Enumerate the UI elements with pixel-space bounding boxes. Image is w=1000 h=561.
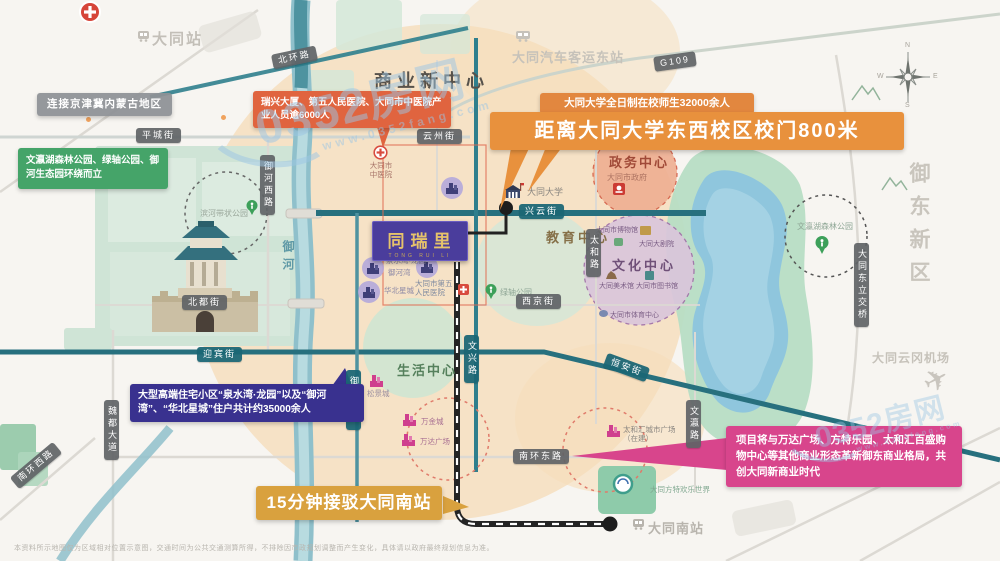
- street-weidu-avenue: 魏都大道: [104, 400, 119, 460]
- business-new-center-label: 商业新中心: [374, 67, 489, 93]
- mall-icon: [402, 434, 415, 446]
- residential-marker: [358, 281, 380, 303]
- poi-dot: [221, 115, 226, 120]
- place-tcm-hospital: 大同市中医院: [368, 161, 394, 180]
- place-riverside-park: 滨河带状公园: [200, 209, 248, 219]
- compass-w: W: [877, 73, 884, 80]
- datong-location-map: ✈: [0, 0, 1000, 561]
- datong-station-label: 大同站: [152, 28, 203, 49]
- art-gallery-icon: [606, 271, 617, 279]
- callout-south-station: 15分钟接驳大同南站: [256, 486, 442, 520]
- place-wenying-lake-park: 文瀛湖森林公园: [797, 222, 853, 232]
- park-pin-icon: [485, 284, 497, 299]
- callout-region: 连接京津冀内蒙古地区: [37, 93, 172, 116]
- street-yuhe-west: 御河西路: [260, 155, 275, 215]
- park-pin-icon: [815, 236, 829, 254]
- place-fifth-hospital: 大同市第五人民医院: [415, 279, 455, 298]
- university-icon: [504, 183, 524, 199]
- fantawild-logo-icon: [612, 473, 634, 495]
- place-art-gallery: 大同美术馆: [599, 283, 634, 292]
- yudong-district-label: 御东新区: [903, 162, 933, 294]
- culture-center-label: 文化中心: [612, 255, 676, 274]
- street-pingcheng: 平城街: [136, 128, 181, 143]
- government-center-label: 政务中心: [609, 152, 669, 171]
- place-datong-university: 大同大学: [527, 187, 563, 198]
- yu-river-label: 御河: [280, 240, 297, 276]
- street-beidu: 北都街: [182, 295, 227, 310]
- street-xingyun: 兴云街: [519, 204, 564, 219]
- street-wenying: 文瀛路: [686, 400, 701, 448]
- museum-icon: [614, 238, 623, 246]
- place-fantawild: 大同方特欢乐世界: [650, 485, 710, 494]
- compass-s: S: [905, 102, 910, 109]
- compass-star: [882, 44, 934, 110]
- mall-icon: [370, 375, 383, 387]
- callout-university-note: 大同大学全日制在校师生32000余人: [540, 93, 754, 114]
- theatre-icon: [640, 226, 651, 235]
- project-marker: 同瑞里 TONG RUI LI: [372, 221, 468, 261]
- park-pin-icon: [246, 200, 258, 215]
- train-icon: [632, 519, 645, 530]
- mall-icon: [403, 414, 416, 426]
- hospital-icon: [373, 145, 388, 160]
- place-yuhewan: 御河湾: [388, 268, 411, 277]
- street-wenxing: 文兴路: [464, 335, 479, 383]
- place-library: 大同市图书馆: [636, 283, 678, 292]
- street-yingbin: 迎宾街: [197, 347, 242, 362]
- disclaimer-text: 本资料所示地图仅为区域相对位置示意图，交通时间为公共交通测算所得，不排除因市政规…: [14, 543, 494, 553]
- callout-university-distance: 距离大同大学东西校区校门800米: [490, 112, 904, 150]
- place-sports-center: 大同市体育中心: [610, 312, 659, 321]
- train-icon: [137, 31, 150, 42]
- street-taihe: 太和路: [586, 229, 601, 277]
- place-theatre: 大同大剧院: [639, 241, 674, 250]
- project-tagline: TONG RUI LI: [373, 253, 467, 259]
- street-nanhuan-east: 南环东路: [513, 449, 569, 464]
- place-huabei-starcity: 华北星城: [384, 286, 414, 295]
- callout-residential: 大型高端住宅小区“泉水湾·龙园”以及“御河湾”、“华北星城”住户共计约35000…: [130, 384, 364, 422]
- place-wanda-plaza: 万达广场: [420, 437, 450, 446]
- stadium-icon: [599, 310, 608, 317]
- government-icon: [613, 183, 625, 195]
- place-songjingcheng: 松景城: [367, 389, 390, 398]
- hospital-cross-icon: [78, 0, 102, 24]
- compass-e: E: [933, 73, 938, 80]
- residential-marker: [441, 177, 463, 199]
- street-xijing: 西京街: [516, 294, 561, 309]
- south-station-label: 大同南站: [648, 518, 704, 537]
- project-name: 同瑞里: [377, 227, 467, 252]
- library-icon: [645, 271, 654, 280]
- bus-icon: [516, 30, 530, 42]
- living-center-label: 生活中心: [397, 360, 457, 379]
- callout-parks: 文瀛湖森林公园、绿轴公园、御河生态园环绕而立: [18, 148, 168, 189]
- callout-commerce: 项目将与万达广场、方特乐园、太和汇百盛购物中心等其他商业形态革新御东商业格局，共…: [726, 426, 962, 487]
- place-museum: 大同市博物馆: [596, 227, 638, 236]
- compass-n: N: [905, 42, 910, 49]
- poi-dot: [86, 117, 91, 122]
- callout-industry: 瑞兴大厦、第五人民医院、大同市中医院产业人员逾6000人: [253, 91, 451, 128]
- compass-rose: N S W E: [882, 44, 934, 110]
- mall-icon: [607, 425, 620, 437]
- street-yunzhou: 云州街: [417, 129, 462, 144]
- street-datong-east-interchange: 大同东立交桥: [854, 243, 869, 327]
- place-taihehui-plaza: 太和汇城市广场（在建）: [623, 425, 683, 444]
- place-wanjincheng: 万金城: [421, 417, 444, 426]
- hospital-icon: [458, 284, 469, 295]
- city-hall-label: 大同市政府: [607, 172, 647, 183]
- bus-east-station-label: 大同汽车客运东站: [512, 47, 624, 66]
